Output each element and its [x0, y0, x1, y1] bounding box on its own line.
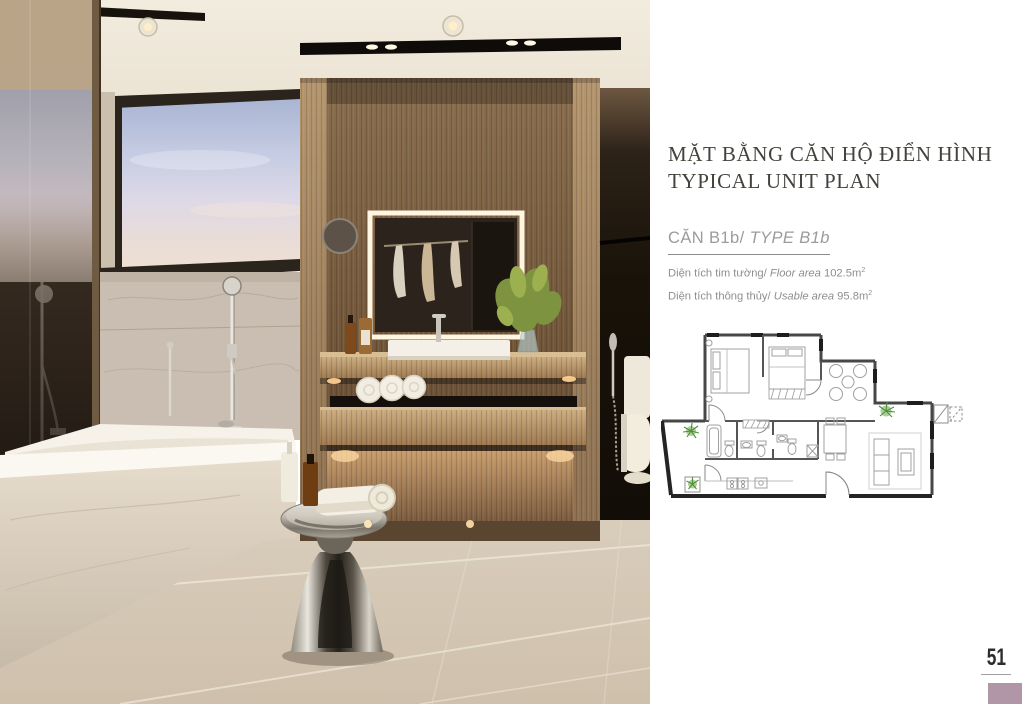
rolled-towels	[357, 376, 426, 403]
usable-area-label-en: Usable area	[774, 290, 834, 302]
floor-plan	[661, 325, 967, 505]
floor-area-row: Diện tích tim tường/ Floor area 102.5m2	[668, 261, 872, 284]
floor-area-value: 102.5m	[824, 268, 861, 280]
plan-kitchen	[705, 478, 793, 489]
usable-area-label-vi: Diện tích thông thủy/	[668, 290, 771, 302]
under-shelf-light	[327, 378, 341, 384]
page-title-vi: MẶT BẰNG CĂN HỘ ĐIỂN HÌNH	[668, 141, 992, 168]
page-number-rule	[981, 674, 1011, 675]
magnifying-mirror	[323, 219, 357, 253]
usable-area-sup: 2	[868, 290, 872, 297]
toilet	[621, 356, 650, 484]
plan-bedroom-furniture	[706, 340, 805, 402]
plan-living-furniture	[869, 433, 921, 489]
plan-bath-fixtures	[707, 425, 818, 457]
lower-shelf	[320, 407, 586, 451]
page-number-block: 51	[980, 644, 1012, 675]
faucet	[436, 317, 441, 342]
plan-entry-gap	[826, 492, 849, 498]
brochure-page: MẶT BẰNG CĂN HỘ ĐIỂN HÌNH TYPICAL UNIT P…	[0, 0, 1024, 704]
page-number: 51	[986, 644, 1005, 672]
bathroom-photo-art	[0, 0, 650, 704]
corner-marker-square	[988, 683, 1022, 704]
usable-area-value: 95.8m	[837, 290, 868, 302]
stool-towel	[313, 484, 396, 517]
unit-areas: Diện tích tim tường/ Floor area 102.5m2 …	[668, 261, 872, 306]
plan-round-table	[830, 365, 867, 401]
unit-name-en: TYPE B1b	[750, 229, 830, 247]
plan-ac-ledge	[934, 405, 962, 423]
page-title: MẶT BẰNG CĂN HỘ ĐIỂN HÌNH TYPICAL UNIT P…	[668, 141, 992, 195]
floor-area-label-en: Floor area	[770, 268, 821, 280]
corner-marker	[988, 683, 1022, 704]
under-shelf-light	[562, 376, 576, 382]
marble-wall	[100, 272, 300, 440]
floor-area-label-vi: Diện tích tim tường/	[668, 268, 767, 280]
floor-area-sup: 2	[861, 267, 865, 274]
usable-area-row: Diện tích thông thủy/ Usable area 95.8m2	[668, 284, 872, 307]
bathroom-photo	[0, 0, 650, 704]
plan-dining-table	[824, 418, 846, 460]
floor-plan-drawing	[661, 325, 967, 505]
page-title-en: TYPICAL UNIT PLAN	[668, 168, 992, 195]
plan-plants	[683, 402, 895, 492]
marble-column	[101, 92, 115, 280]
unit-type-heading: CĂN B1b/ TYPE B1b	[668, 229, 830, 255]
window	[100, 89, 310, 282]
unit-name-vi: CĂN B1b/	[668, 229, 745, 247]
